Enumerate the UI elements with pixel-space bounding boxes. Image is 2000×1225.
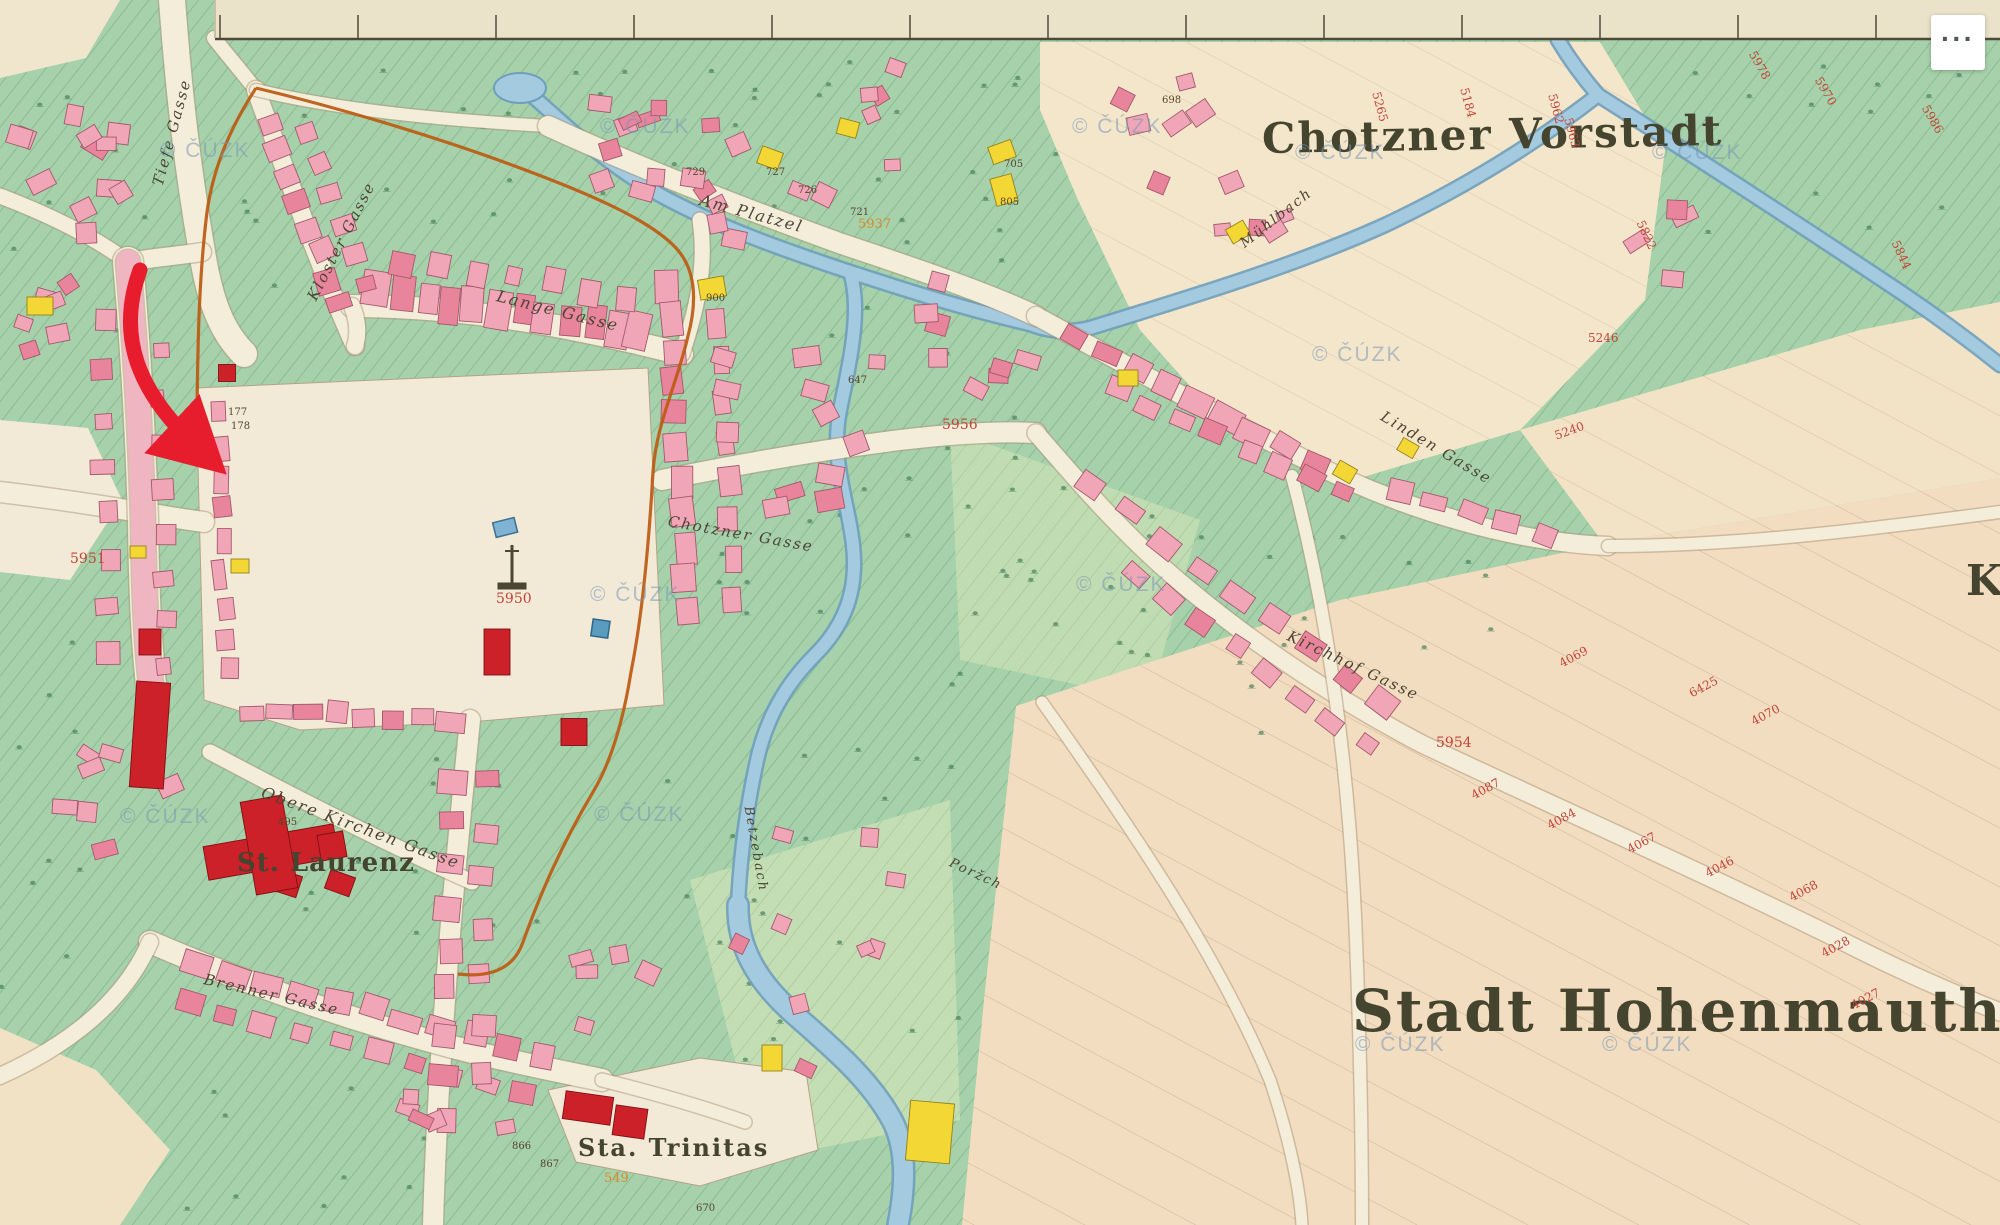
town-square [196, 368, 664, 730]
sheet-margin [215, 0, 2000, 39]
map-viewport[interactable]: Chotzner VorstadtStadt HohenmauthSt. Lau… [0, 0, 2000, 1225]
more-options-button[interactable]: ··· [1931, 15, 1985, 70]
historical-cadastral-map [0, 0, 2000, 1225]
